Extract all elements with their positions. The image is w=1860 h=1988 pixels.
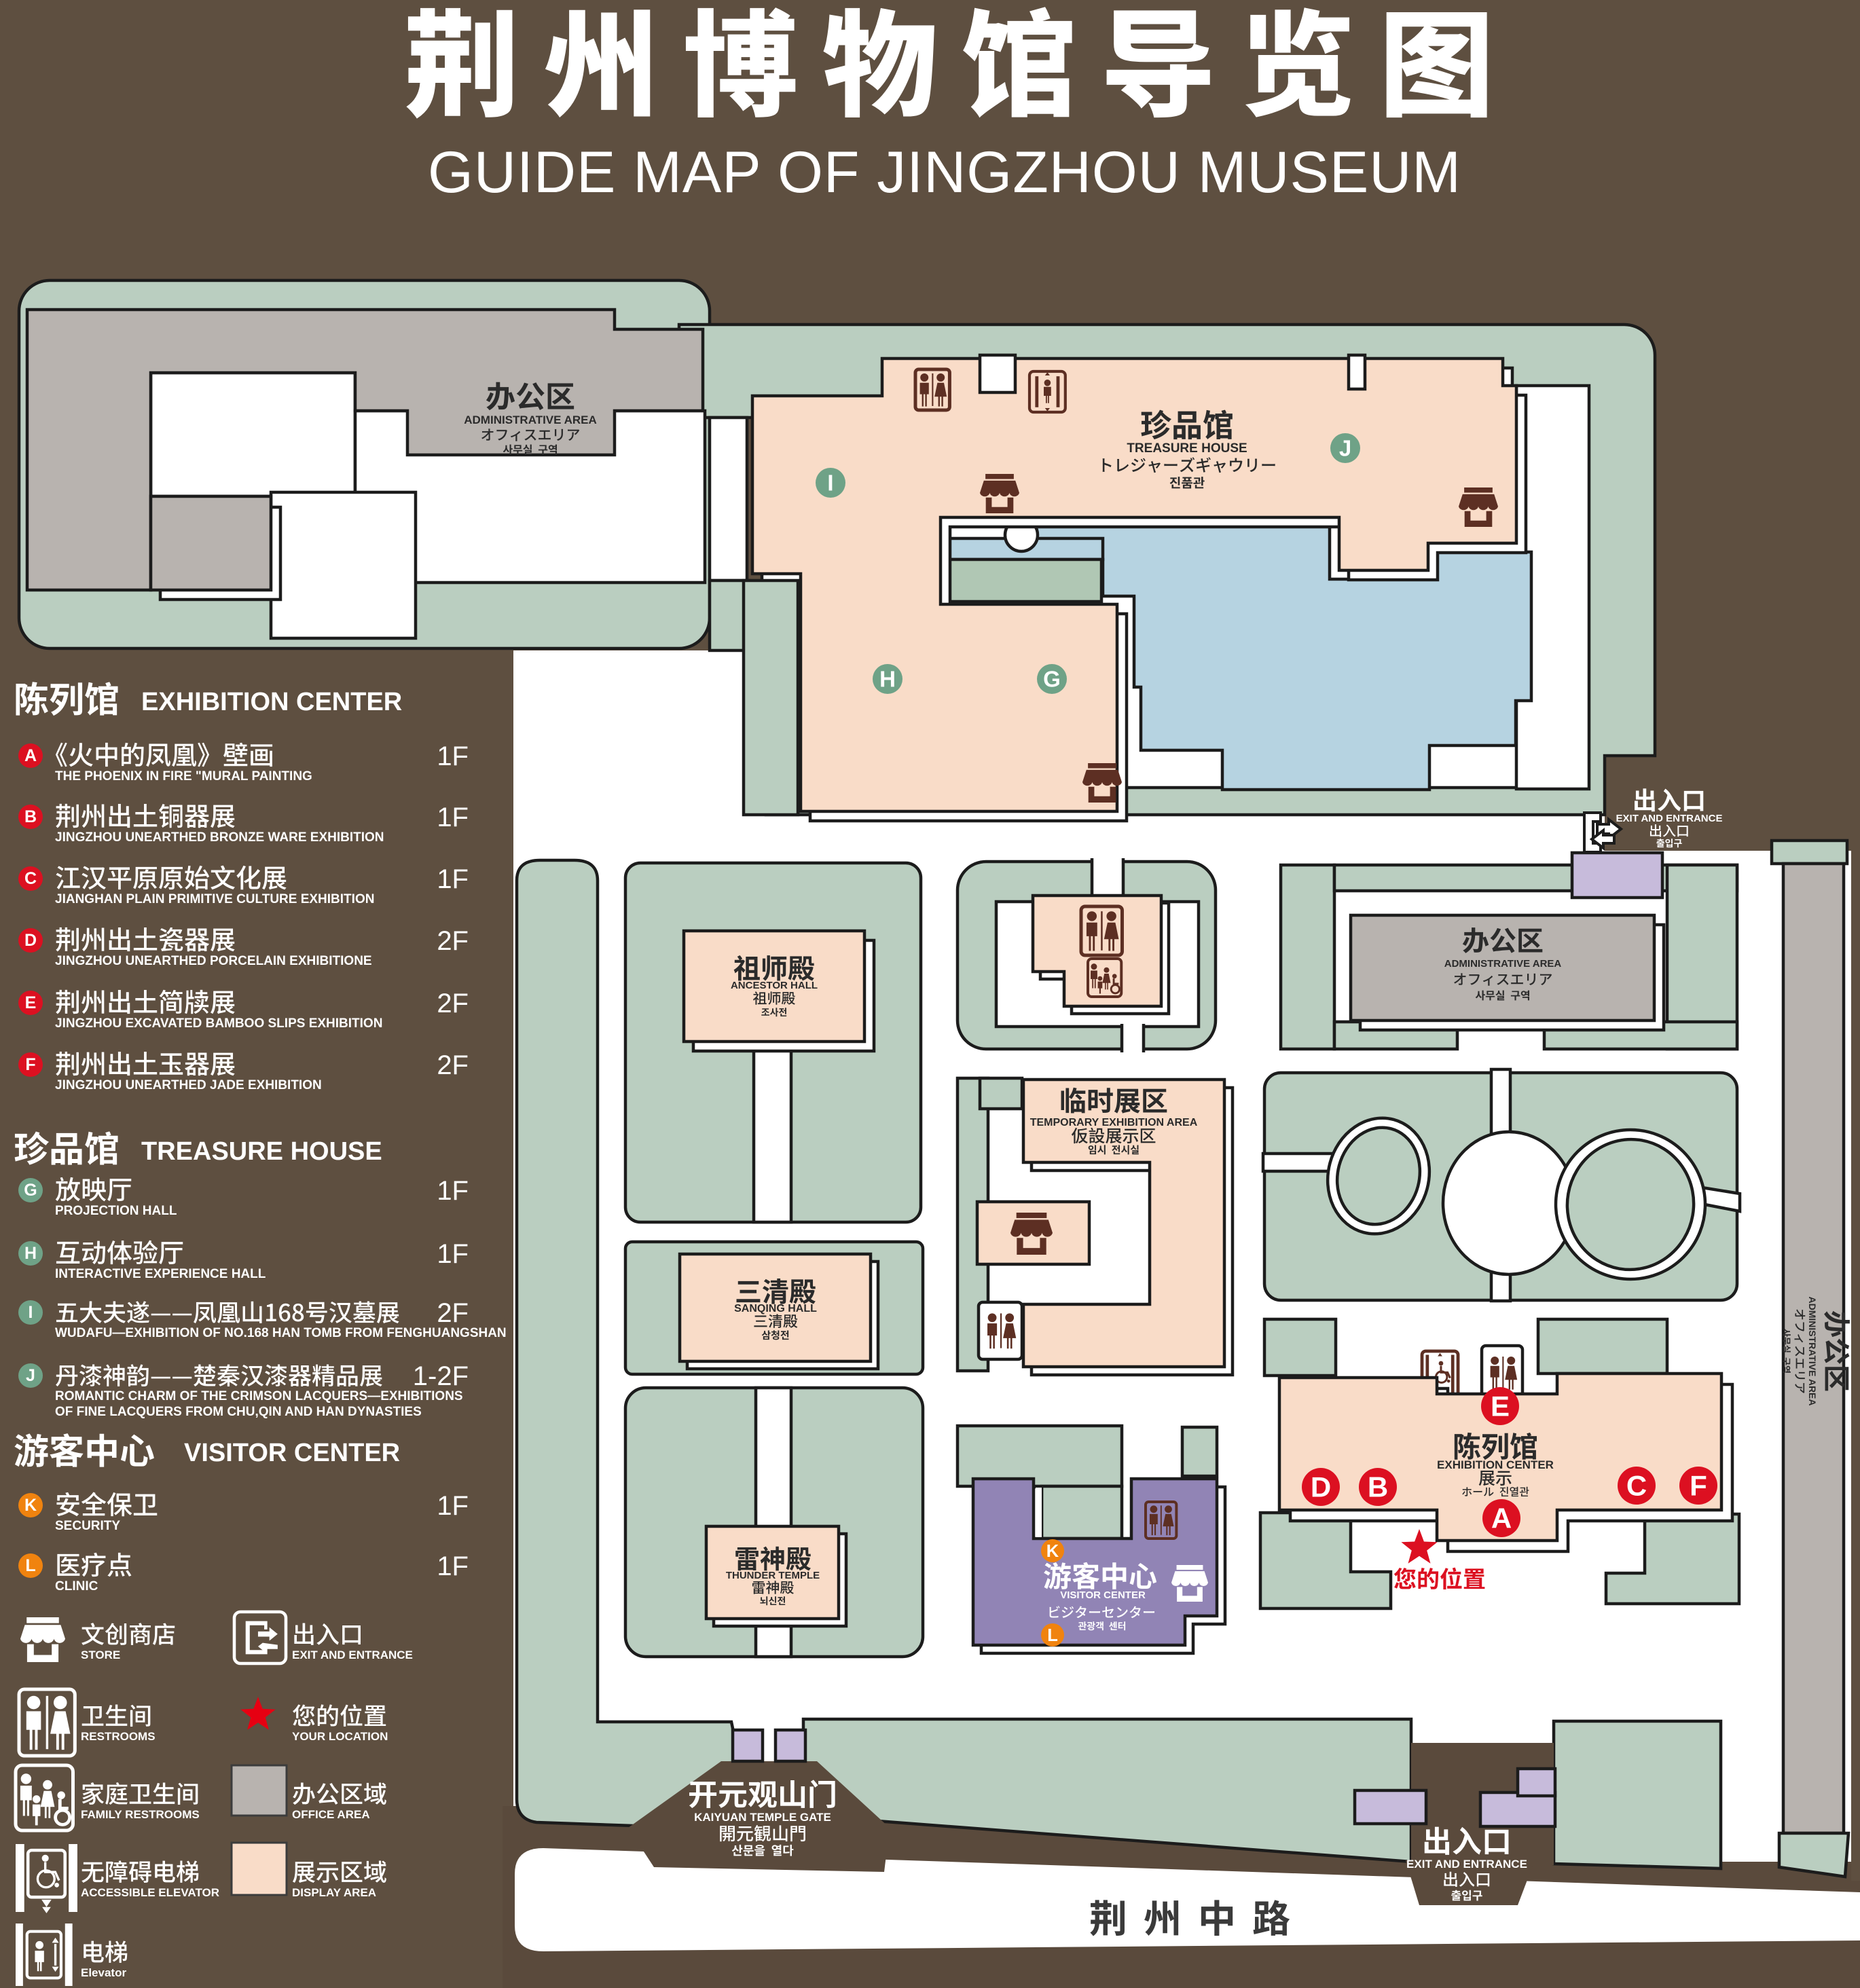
svg-text:EXHIBITION CENTER: EXHIBITION CENTER [141,688,402,716]
svg-text:1F: 1F [437,1239,469,1269]
svg-text:JIANGHAN PLAIN PRIMITIVE CULTU: JIANGHAN PLAIN PRIMITIVE CULTURE EXHIBIT… [55,892,374,906]
svg-text:RESTROOMS: RESTROOMS [81,1730,156,1743]
svg-text:E: E [25,993,37,1012]
svg-text:2F: 2F [437,989,469,1018]
svg-text:TREASURE HOUSE: TREASURE HOUSE [141,1137,382,1166]
svg-text:H: H [24,1244,37,1263]
svg-text:JINGZHOU UNEARTHED BRONZE WARE: JINGZHOU UNEARTHED BRONZE WARE EXHIBITIO… [55,830,384,845]
svg-text:I: I [827,470,833,495]
svg-text:B: B [24,807,37,826]
svg-text:SECURITY: SECURITY [55,1519,120,1533]
svg-text:1F: 1F [437,864,469,894]
svg-text:KAIYUAN TEMPLE GATE: KAIYUAN TEMPLE GATE [694,1811,831,1824]
svg-text:1F: 1F [437,1176,469,1206]
svg-text:YOUR LOCATION: YOUR LOCATION [292,1730,388,1743]
svg-text:THUNDER TEMPLE: THUNDER TEMPLE [726,1570,820,1581]
svg-text:C: C [1626,1470,1647,1502]
svg-text:GUIDE MAP OF JINGZHOU MUSEUM: GUIDE MAP OF JINGZHOU MUSEUM [428,140,1461,205]
svg-text:D: D [24,931,37,950]
svg-text:G: G [24,1181,37,1200]
svg-text:FAMILY RESTROOMS: FAMILY RESTROOMS [81,1808,200,1821]
svg-text:EXIT AND ENTRANCE: EXIT AND ENTRANCE [1406,1858,1527,1871]
svg-text:CLINIC: CLINIC [55,1579,98,1594]
svg-text:2F: 2F [437,926,469,956]
svg-text:J: J [1339,435,1351,460]
svg-text:1F: 1F [437,1551,469,1581]
svg-text:K: K [24,1496,37,1515]
svg-text:TEMPORARY EXHIBITION AREA: TEMPORARY EXHIBITION AREA [1030,1117,1198,1128]
svg-text:A: A [24,746,37,765]
svg-text:1F: 1F [437,803,469,832]
svg-text:SANQING HALL: SANQING HALL [734,1303,817,1314]
svg-text:1F: 1F [437,1491,469,1521]
svg-text:A: A [1491,1503,1512,1534]
svg-text:ROMANTIC CHARM OF THE CRIMSON: ROMANTIC CHARM OF THE CRIMSON LACQUERS—E… [55,1389,463,1403]
svg-text:ACCESSIBLE ELEVATOR: ACCESSIBLE ELEVATOR [81,1886,219,1899]
svg-text:L: L [1047,1626,1058,1645]
svg-text:F: F [1690,1470,1707,1502]
svg-text:EXIT AND ENTRANCE: EXIT AND ENTRANCE [292,1649,413,1661]
svg-text:PROJECTION HALL: PROJECTION HALL [55,1204,177,1218]
svg-text:ADMINISTRATIVE AREA: ADMINISTRATIVE AREA [1444,958,1562,970]
svg-text:K: K [1046,1542,1059,1561]
svg-text:2F: 2F [437,1050,469,1080]
svg-text:H: H [879,666,896,691]
svg-text:B: B [1368,1471,1388,1503]
svg-text:OFFICE AREA: OFFICE AREA [292,1808,370,1821]
svg-text:1F: 1F [437,741,469,771]
svg-text:ADMINISTRATIVE AREA: ADMINISTRATIVE AREA [464,413,597,426]
svg-text:EXHIBITION CENTER: EXHIBITION CENTER [1437,1458,1554,1471]
svg-text:JINGZHOU UNEARTHED PORCELAIN E: JINGZHOU UNEARTHED PORCELAIN EXHIBITIONE [55,954,372,968]
svg-text:STORE: STORE [81,1649,120,1661]
svg-text:ADMINISTRATIVE AREA: ADMINISTRATIVE AREA [1807,1297,1818,1406]
svg-text:F: F [25,1055,35,1074]
svg-text:L: L [25,1556,35,1575]
svg-text:VISITOR CENTER: VISITOR CENTER [184,1439,400,1467]
svg-text:1-2F: 1-2F [413,1361,469,1391]
svg-text:DISPLAY AREA: DISPLAY AREA [292,1886,376,1899]
svg-text:E: E [1491,1391,1510,1422]
svg-text:VISITOR CENTER: VISITOR CENTER [1060,1589,1146,1601]
svg-text:EXIT AND ENTRANCE: EXIT AND ENTRANCE [1616,813,1723,824]
svg-text:TREASURE HOUSE: TREASURE HOUSE [1127,441,1247,456]
svg-text:J: J [26,1366,35,1385]
svg-text:WUDAFU—EXHIBITION OF NO.168 HA: WUDAFU—EXHIBITION OF NO.168 HAN TOMB FRO… [55,1326,507,1340]
svg-text:INTERACTIVE EXPERIENCE HALL: INTERACTIVE EXPERIENCE HALL [55,1267,266,1281]
svg-text:OF FINE LACQUERS FROM CHU,QIN: OF FINE LACQUERS FROM CHU,QIN AND HAN DY… [55,1405,422,1419]
svg-text:D: D [1311,1471,1331,1503]
svg-text:I: I [29,1303,33,1322]
svg-text:G: G [1043,666,1061,691]
svg-text:THE PHOENIX IN FIRE "MURAL PAI: THE PHOENIX IN FIRE "MURAL PAINTING [55,769,312,784]
svg-text:2F: 2F [437,1298,469,1328]
svg-text:C: C [24,869,37,888]
svg-text:JINGZHOU EXCAVATED BAMBOO SLIP: JINGZHOU EXCAVATED BAMBOO SLIPS EXHIBITI… [55,1016,382,1031]
svg-text:Elevator: Elevator [81,1966,126,1979]
svg-text:JINGZHOU UNEARTHED JADE EXHIBI: JINGZHOU UNEARTHED JADE EXHIBITION [55,1078,322,1092]
svg-text:ANCESTOR HALL: ANCESTOR HALL [731,980,818,991]
